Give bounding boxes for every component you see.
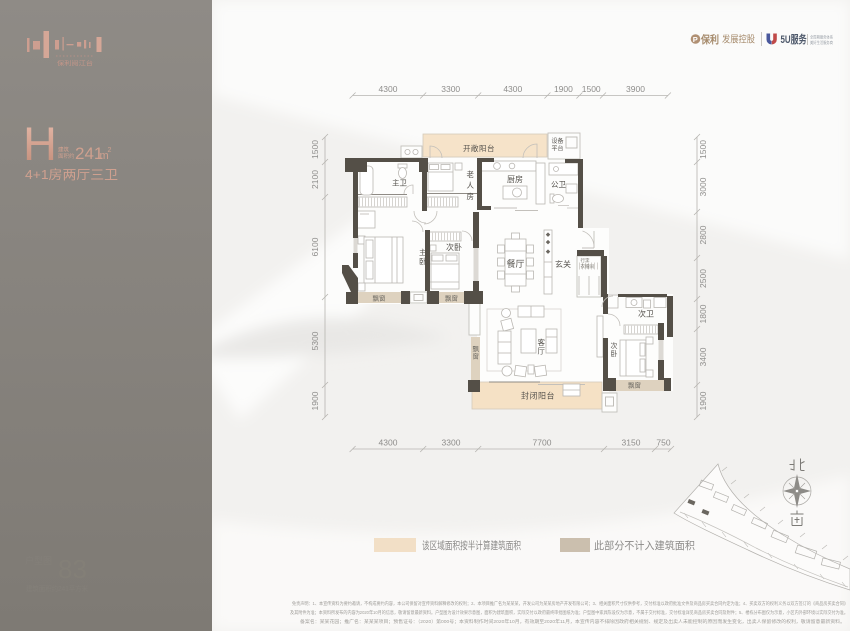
svg-text:1900: 1900	[310, 391, 320, 410]
svg-text:开敞阳台: 开敞阳台	[463, 143, 495, 153]
svg-text:建筑面积约241平方米: 建筑面积约241平方米	[26, 584, 88, 593]
svg-text:平台: 平台	[552, 145, 564, 153]
svg-text:83: 83	[58, 554, 87, 584]
svg-text:1500: 1500	[582, 84, 601, 94]
svg-text:2: 2	[108, 147, 112, 154]
svg-text:餐厅: 餐厅	[507, 258, 525, 269]
svg-text:人: 人	[467, 181, 475, 190]
svg-text:飘窗: 飘窗	[373, 294, 386, 303]
svg-text:3150: 3150	[622, 438, 641, 448]
svg-text:衣帽间: 衣帽间	[581, 263, 595, 270]
svg-text:主: 主	[419, 247, 427, 257]
svg-text:封闭阳台: 封闭阳台	[521, 391, 555, 401]
svg-text:次: 次	[611, 341, 618, 350]
svg-text:飘窗: 飘窗	[628, 381, 641, 390]
svg-text:3400: 3400	[698, 347, 708, 366]
svg-text:窗: 窗	[473, 352, 480, 361]
svg-text:行李: 行李	[581, 257, 590, 264]
svg-text:750: 750	[656, 438, 670, 448]
svg-text:6100: 6100	[310, 237, 320, 256]
svg-text:卧: 卧	[611, 350, 618, 358]
svg-text:老: 老	[467, 169, 475, 179]
svg-text:3000: 3000	[698, 177, 708, 196]
svg-text:房: 房	[467, 191, 475, 201]
svg-text:建筑: 建筑	[58, 146, 70, 154]
svg-text:2500: 2500	[698, 269, 708, 288]
svg-text:3900: 3900	[626, 84, 645, 94]
svg-text:面积约: 面积约	[58, 152, 75, 160]
svg-text:卧: 卧	[419, 257, 427, 266]
svg-text:7700: 7700	[533, 438, 552, 448]
svg-text:公卫: 公卫	[551, 180, 566, 189]
svg-text:2800: 2800	[698, 225, 708, 244]
svg-text:5U服务: 5U服务	[781, 32, 808, 46]
svg-text:1500: 1500	[698, 140, 708, 159]
svg-text:户型图: 户型图	[25, 555, 52, 566]
svg-text:P: P	[693, 35, 698, 44]
svg-text:保利: 保利	[700, 33, 719, 46]
svg-text:发展控股: 发展控股	[722, 34, 755, 46]
svg-text:飘窗: 飘窗	[445, 294, 458, 303]
svg-text:4300: 4300	[379, 438, 398, 448]
svg-text:3300: 3300	[442, 438, 461, 448]
svg-text:该区域面积按半计算建筑面积: 该区域面积按半计算建筑面积	[422, 539, 521, 552]
svg-text:次卫: 次卫	[638, 309, 654, 319]
svg-text:H: H	[23, 117, 57, 170]
svg-text:次卧: 次卧	[446, 242, 462, 252]
svg-text:及其附件为准；本资料所发布的内容为2020年10月的信息，敬: 及其附件为准；本资料所发布的内容为2020年10月的信息，敬请留意最新资料。户型…	[290, 609, 848, 616]
svg-text:厅: 厅	[538, 347, 546, 356]
svg-text:2100: 2100	[310, 170, 320, 189]
svg-text:客: 客	[538, 337, 546, 347]
svg-text:免责声明：1、本宣传资料为要约邀请，不构成要约内容，本公司保: 免责声明：1、本宣传资料为要约邀请，不构成要约内容，本公司保留对宣传资料解释修改…	[292, 600, 848, 607]
svg-text:设备: 设备	[552, 137, 564, 145]
svg-text:厨房: 厨房	[507, 174, 523, 184]
svg-text:美好生活服务商: 美好生活服务商	[810, 39, 833, 46]
svg-text:玄关: 玄关	[555, 259, 571, 269]
svg-text:备案名：某某花园；推广名：某某某项目；预售证号：（2020）: 备案名：某某花园；推广名：某某某项目；预售证号：（2020）第000号；本资料制…	[300, 618, 845, 625]
svg-text:主卫: 主卫	[392, 178, 407, 188]
svg-text:保利阅江台: 保利阅江台	[57, 60, 93, 68]
svg-text:飘: 飘	[473, 345, 480, 353]
svg-text:1500: 1500	[310, 140, 320, 159]
svg-text:1900: 1900	[698, 391, 708, 410]
svg-text:4+1房两厅三卫: 4+1房两厅三卫	[25, 167, 118, 182]
svg-text:3300: 3300	[441, 84, 460, 94]
svg-text:此部分不计入建筑面积: 此部分不计入建筑面积	[594, 539, 695, 552]
svg-text:1800: 1800	[698, 304, 708, 323]
svg-text:4300: 4300	[379, 84, 398, 94]
svg-text:1900: 1900	[554, 84, 573, 94]
svg-text:4300: 4300	[503, 84, 522, 94]
svg-text:5300: 5300	[310, 331, 320, 350]
